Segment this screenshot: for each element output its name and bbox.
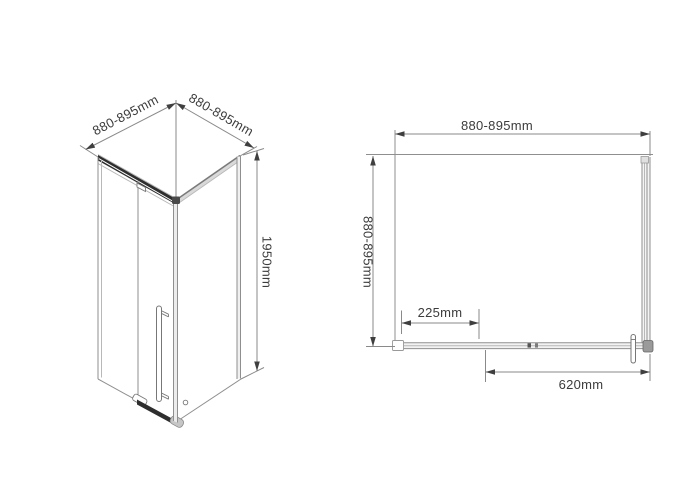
iso-door-handle bbox=[157, 306, 169, 402]
plan-dim-depth-label: 880-895mm bbox=[361, 216, 376, 288]
plan-dim-door-label: 620mm bbox=[559, 377, 604, 392]
iso-width-left-dimension: 880-895mm bbox=[86, 92, 177, 150]
plan-door-track bbox=[393, 341, 646, 351]
plan-roller-right bbox=[535, 343, 538, 347]
iso-door-panel bbox=[98, 155, 185, 429]
iso-width-right-dimension: 880-895mm bbox=[176, 90, 256, 148]
iso-right-panel bbox=[176, 156, 241, 423]
plan-right-profile bbox=[641, 157, 650, 345]
plan-dim-fixed-panel-label: 225mm bbox=[418, 305, 463, 320]
iso-view: 880-895mm 880-895mm 1950mm bbox=[80, 90, 275, 429]
plan-track-end-cap bbox=[393, 341, 404, 351]
plan-view: 880-895mm 880-895mm 225mm 620mm bbox=[361, 118, 654, 392]
plan-dim-width-label: 880-895mm bbox=[461, 118, 533, 133]
iso-dim-height-label: 1950mm bbox=[260, 236, 275, 288]
iso-enclosure bbox=[98, 155, 241, 429]
screw-icon bbox=[183, 400, 188, 405]
canvas: 880-895mm 880-895mm 1950mm bbox=[0, 0, 700, 495]
iso-height-dimension: 1950mm bbox=[257, 151, 275, 371]
plan-width-dimension: 880-895mm bbox=[395, 118, 650, 156]
plan-door-dimension: 620mm bbox=[486, 350, 651, 392]
plan-corner-block bbox=[643, 341, 653, 353]
iso-extension-lines bbox=[80, 100, 264, 379]
plan-fixed-panel-dimension: 225mm bbox=[402, 305, 480, 339]
plan-depth-dimension: 880-895mm bbox=[361, 156, 396, 347]
plan-roller-left bbox=[528, 343, 532, 347]
iso-dim-width-left-label: 880-895mm bbox=[90, 92, 161, 139]
iso-corner-post bbox=[172, 197, 180, 423]
technical-drawing: 880-895mm 880-895mm 1950mm bbox=[0, 0, 700, 495]
plan-enclosure bbox=[366, 130, 653, 363]
iso-top-rail bbox=[98, 155, 176, 205]
plan-door-handle bbox=[631, 335, 636, 364]
